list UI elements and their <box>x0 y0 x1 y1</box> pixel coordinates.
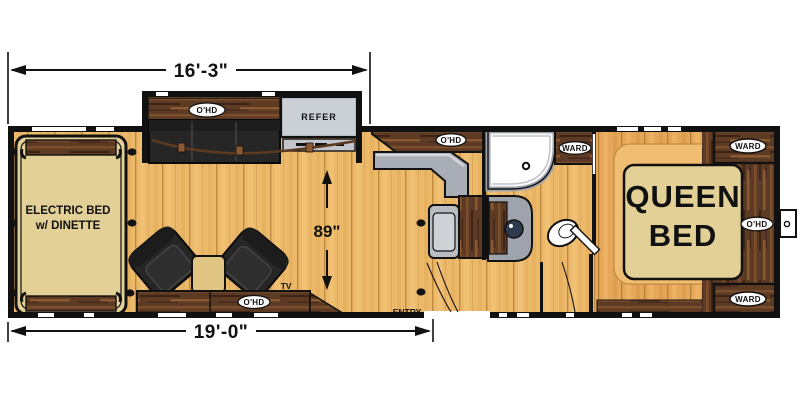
garage-electric-bed: ELECTRIC BED w/ DINETTE <box>16 136 126 314</box>
pantry-cabinet <box>459 196 486 258</box>
vanity-cabinet <box>489 202 507 254</box>
hall-wall-left <box>540 262 543 314</box>
refrigerator-label: REFER <box>301 112 337 122</box>
ohd-bedroom-label: O'HD <box>747 220 768 229</box>
entry-opening <box>424 311 490 319</box>
wall-front <box>774 126 780 318</box>
queen-bed-label-2: BED <box>649 218 717 253</box>
floorplan-svg: 16'-3" 19'-0" QUEEN BED WARD WARD O'HD <box>0 0 800 400</box>
electric-bed-label-1: ELECTRIC BED <box>26 205 111 217</box>
sink <box>505 220 523 238</box>
electric-bed-label-2: w/ DINETTE <box>35 220 101 232</box>
dim-top-label: 16'-3" <box>174 61 229 82</box>
wardrobe-bottom-label: WARD <box>735 295 761 304</box>
bed-trim-bottom <box>26 296 116 311</box>
side-table <box>192 256 225 293</box>
bath-wall-left <box>482 128 486 260</box>
ohd-kitchen-label: O'HD <box>441 136 462 145</box>
corner-shower <box>488 131 555 189</box>
wardrobe-bath-label: WARD <box>562 144 588 153</box>
wall-rear-ramp <box>8 126 14 318</box>
dim-garage-label: 89" <box>314 222 341 241</box>
dim-bottom-label: 19'-0" <box>194 322 249 343</box>
utility-outlet-icon <box>784 221 789 226</box>
floorplan-canvas: 16'-3" 19'-0" QUEEN BED WARD WARD O'HD <box>0 0 800 400</box>
queen-bed-label-1: QUEEN <box>625 179 740 214</box>
hall-wall-right <box>589 254 593 314</box>
tv-label: TV <box>281 281 292 291</box>
sofa-refer-slideout: O'HD REFER <box>142 91 362 163</box>
bedroom-base-cabinet <box>597 300 705 313</box>
exterior-utility-box <box>780 210 796 237</box>
wall-top-right <box>360 126 780 132</box>
ohd-slideout-label: O'HD <box>197 106 218 115</box>
entry-label: ENTRY <box>393 307 422 317</box>
pocket-door <box>593 134 595 174</box>
bed-trim-top <box>26 140 116 155</box>
ohd-tv-cabinet-label: O'HD <box>244 298 265 307</box>
wardrobe-top-label: WARD <box>735 142 761 151</box>
slideout-wall-top <box>142 91 362 97</box>
